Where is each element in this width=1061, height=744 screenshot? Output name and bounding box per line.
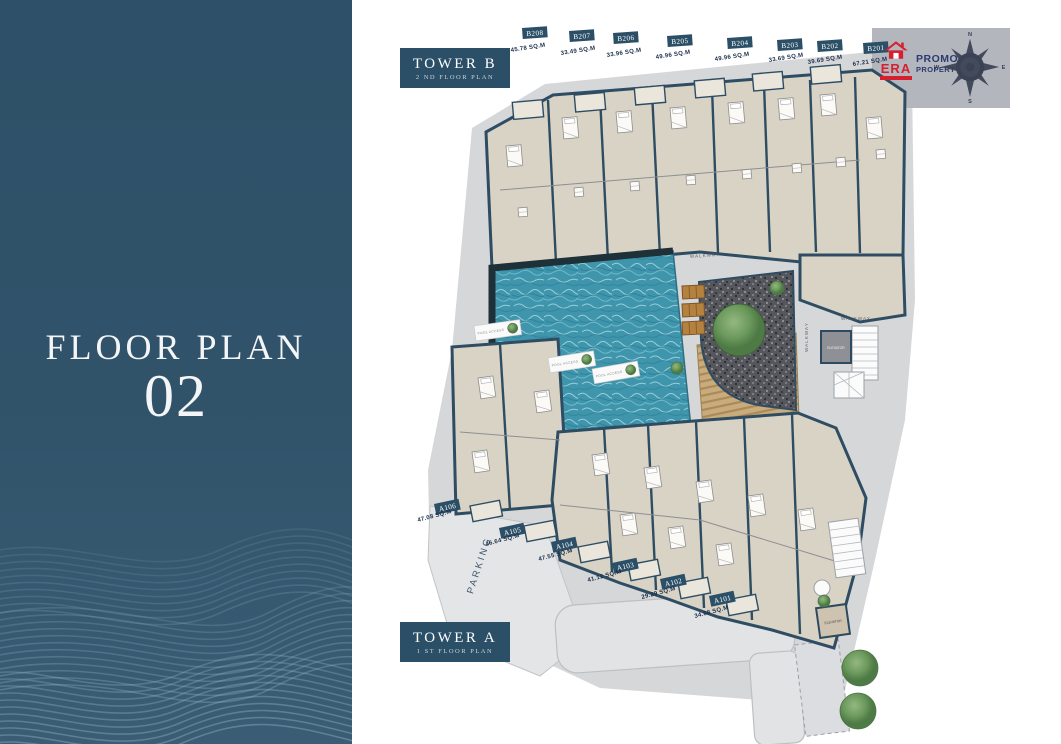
round-table: [814, 580, 830, 596]
compass-e: E: [1002, 65, 1006, 71]
furniture-bed: [534, 390, 552, 413]
balcony-room: [512, 100, 543, 120]
svg-text:33.96 SQ.M: 33.96 SQ.M: [606, 48, 642, 59]
furniture-bed: [644, 466, 662, 489]
walkway-label-vertical: WALKWAY: [804, 322, 809, 352]
furniture-table: [630, 181, 640, 191]
tower-b-subtitle: 2 ND FLOOR PLAN: [400, 74, 510, 81]
furniture-bed: [668, 526, 686, 549]
house-icon: [883, 40, 909, 62]
furniture-bed: [696, 480, 714, 503]
furniture-table: [836, 157, 846, 167]
tower-a-label-box: TOWER A 1 ST FLOOR PLAN: [400, 622, 510, 662]
era-text: ERA: [881, 62, 911, 75]
balcony-room: [810, 65, 841, 85]
garden-tree: [713, 304, 765, 356]
furniture-table: [792, 163, 802, 173]
furniture-table: [876, 149, 886, 159]
svg-text:B204: B204: [731, 39, 749, 48]
balcony-room: [752, 71, 783, 91]
era-bar: [880, 76, 912, 80]
logo-box: ERA PROMO PROPERTY: [872, 28, 1010, 108]
svg-text:33.49 SQ.M: 33.49 SQ.M: [560, 46, 596, 57]
svg-text:B206: B206: [617, 34, 635, 43]
svg-text:B203: B203: [781, 41, 799, 50]
plan-area: WALKWAY WALKWAY WALKWAY ELEVATOR ELEVATO…: [352, 0, 1061, 744]
compass-n: N: [968, 32, 972, 38]
furniture-table: [742, 169, 752, 179]
compass-icon: N E S W: [934, 30, 1006, 104]
furniture-table: [518, 207, 528, 217]
svg-text:B208: B208: [526, 29, 544, 38]
unit-label-B205: B20549.96 SQ.M: [655, 34, 692, 61]
furniture-table: [686, 175, 696, 185]
furniture-bed: [620, 513, 638, 536]
furniture-bed: [716, 543, 734, 566]
page-title: FLOOR PLAN: [0, 326, 352, 368]
tower-a-title: TOWER A: [400, 630, 510, 647]
compass-s: S: [968, 99, 972, 104]
tree: [840, 693, 876, 729]
walkway-label-right: WALKWAY: [841, 316, 871, 321]
balcony-room: [574, 92, 605, 112]
furniture-bed: [616, 111, 633, 133]
tower-b-label-box: TOWER B 2 ND FLOOR PLAN: [400, 48, 510, 88]
furniture-table: [574, 187, 584, 197]
furniture-bed: [592, 453, 610, 476]
pool-lounger: [682, 321, 705, 335]
floor-number: 02: [0, 368, 352, 424]
svg-text:B202: B202: [821, 42, 839, 51]
unit-label-B207: B20733.49 SQ.M: [560, 29, 596, 57]
furniture-bed: [820, 94, 837, 116]
svg-text:45.78 SQ.M: 45.78 SQ.M: [510, 43, 546, 54]
unit-label-B206: B20633.96 SQ.M: [606, 31, 642, 59]
svg-text:49.96 SQ.M: 49.96 SQ.M: [714, 52, 750, 63]
furniture-bed: [506, 145, 523, 167]
sidebar: FLOOR PLAN 02: [0, 0, 352, 744]
pool-lounger: [682, 303, 705, 317]
furniture-bed: [748, 494, 766, 517]
furniture-bed: [670, 107, 687, 129]
pool-lounger: [682, 285, 705, 299]
compass-w: W: [934, 65, 940, 71]
title-block: FLOOR PLAN 02: [0, 326, 352, 424]
furniture-bed: [472, 450, 490, 473]
furniture-bed: [866, 117, 883, 139]
tree: [842, 650, 878, 686]
tree: [770, 281, 784, 295]
unit-label-B208: B20845.78 SQ.M: [510, 26, 547, 54]
unit-label-B204: B20449.96 SQ.M: [714, 36, 752, 63]
furniture-bed: [728, 102, 745, 124]
tree: [818, 595, 830, 607]
page: FLOOR PLAN 02: [0, 0, 1061, 744]
svg-text:B207: B207: [573, 32, 591, 41]
tower-b-title: TOWER B: [400, 56, 510, 73]
svg-text:B205: B205: [671, 37, 689, 46]
furniture-bed: [562, 117, 579, 139]
tower-a-subtitle: 1 ST FLOOR PLAN: [400, 648, 510, 655]
svg-text:49.96 SQ.M: 49.96 SQ.M: [655, 50, 691, 61]
balcony-room: [694, 78, 725, 98]
elevator-label-b: ELEVATOR: [827, 346, 845, 350]
furniture-bed: [778, 98, 795, 120]
furniture-bed: [478, 376, 496, 399]
tree: [671, 362, 683, 374]
balcony-room: [634, 85, 665, 105]
furniture-bed: [798, 508, 816, 531]
